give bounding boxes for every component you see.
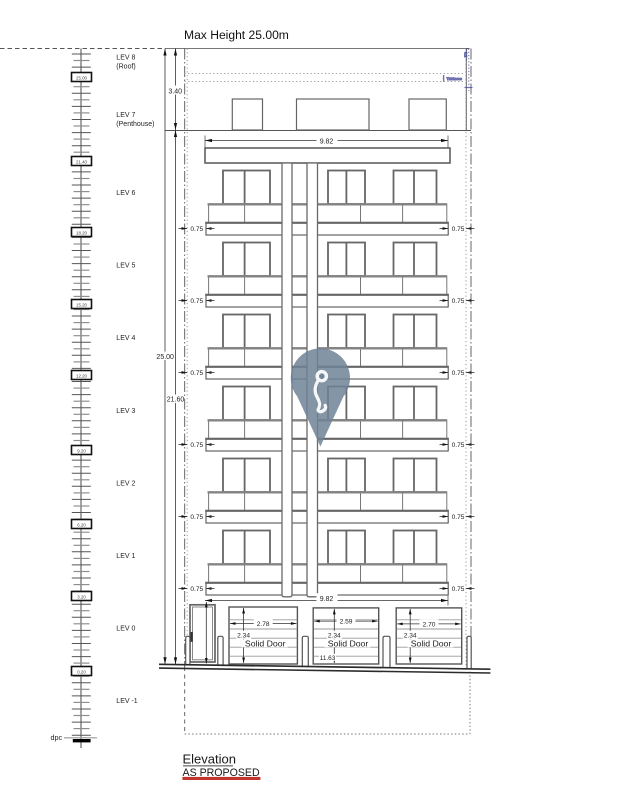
- svg-text:25.00: 25.00: [156, 354, 174, 361]
- svg-text:0.75: 0.75: [190, 586, 203, 593]
- svg-text:LEV 0: LEV 0: [116, 626, 135, 633]
- svg-text:12.20: 12.20: [76, 373, 88, 378]
- svg-text:Thickness: Thickness: [447, 77, 463, 81]
- svg-text:0.75: 0.75: [452, 298, 465, 305]
- svg-text:LEV 3: LEV 3: [116, 408, 135, 415]
- svg-text:9.82: 9.82: [320, 596, 334, 603]
- svg-text:0.75: 0.75: [452, 586, 465, 593]
- svg-text:dpc: dpc: [51, 733, 63, 742]
- svg-text:21.40: 21.40: [76, 159, 88, 164]
- svg-text:2.78: 2.78: [257, 621, 270, 628]
- svg-text:3.40: 3.40: [168, 88, 182, 95]
- svg-text:0.75: 0.75: [190, 226, 203, 233]
- svg-text:6.20: 6.20: [77, 522, 86, 527]
- svg-text:18.20: 18.20: [76, 230, 88, 235]
- svg-text:(Roof): (Roof): [116, 63, 135, 70]
- svg-text:21.60: 21.60: [167, 397, 185, 404]
- svg-text:3.20: 3.20: [77, 594, 86, 599]
- svg-text:0.20: 0.20: [77, 669, 86, 674]
- svg-text:LEV 2: LEV 2: [116, 480, 135, 487]
- svg-text:Solid Door: Solid Door: [411, 638, 452, 648]
- svg-text:0.2: 0.2: [463, 52, 467, 57]
- svg-text:0.75: 0.75: [452, 226, 465, 233]
- svg-text:0.75: 0.75: [452, 370, 465, 377]
- svg-text:0.75: 0.75: [190, 514, 203, 521]
- svg-text:9.82: 9.82: [320, 139, 334, 146]
- svg-text:LEV 6: LEV 6: [116, 190, 135, 197]
- svg-text:Solid Door: Solid Door: [328, 638, 369, 648]
- svg-text:9.20: 9.20: [77, 448, 86, 453]
- svg-text:0.75: 0.75: [190, 442, 203, 449]
- svg-text:LEV 1: LEV 1: [116, 553, 135, 560]
- svg-text:2.59: 2.59: [340, 619, 353, 626]
- svg-text:Elevation: Elevation: [183, 751, 236, 766]
- svg-text:LEV 5: LEV 5: [116, 263, 135, 270]
- svg-text:LEV 7: LEV 7: [116, 112, 135, 119]
- svg-text:LEV 4: LEV 4: [116, 335, 135, 342]
- svg-text:25.00: 25.00: [76, 75, 88, 80]
- svg-text:(Penthouse): (Penthouse): [116, 121, 154, 128]
- svg-text:Max Height 25.00m: Max Height 25.00m: [184, 28, 289, 42]
- svg-text:2.70: 2.70: [423, 621, 436, 628]
- svg-text:15.20: 15.20: [76, 302, 88, 307]
- svg-text:0.75: 0.75: [190, 298, 203, 305]
- svg-text:LEV -1: LEV -1: [116, 698, 138, 705]
- svg-text:0.75: 0.75: [190, 370, 203, 377]
- svg-text:11.63: 11.63: [320, 655, 336, 662]
- svg-text:LEV 8: LEV 8: [116, 54, 135, 61]
- svg-text:Solid Door: Solid Door: [245, 638, 286, 648]
- svg-text:0.75: 0.75: [452, 514, 465, 521]
- svg-text:0.75: 0.75: [452, 442, 465, 449]
